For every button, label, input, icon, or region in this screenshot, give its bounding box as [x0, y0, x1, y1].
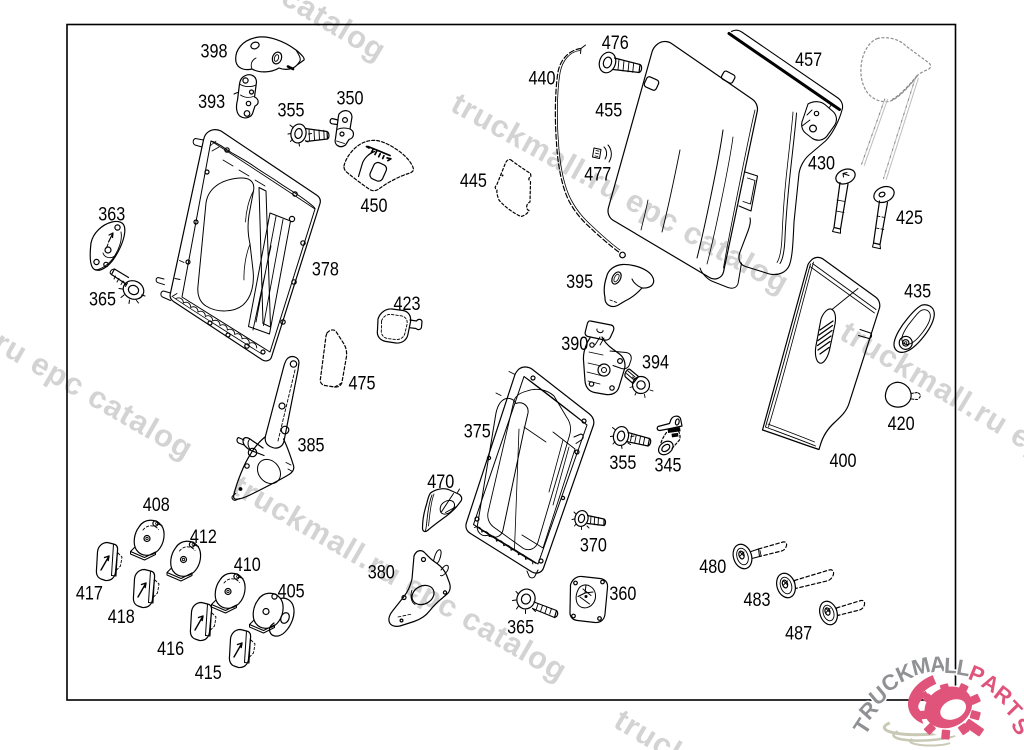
svg-text:355: 355 [278, 100, 305, 121]
svg-text:440: 440 [529, 68, 556, 89]
svg-text:487: 487 [785, 623, 812, 644]
svg-text:365: 365 [507, 617, 534, 638]
svg-text:417: 417 [76, 584, 103, 605]
svg-text:430: 430 [808, 154, 835, 175]
svg-text:378: 378 [312, 260, 339, 281]
svg-text:394: 394 [642, 352, 669, 373]
svg-text:420: 420 [888, 414, 915, 435]
svg-text:423: 423 [394, 294, 421, 315]
svg-text:375: 375 [464, 422, 491, 443]
svg-text:418: 418 [108, 607, 135, 628]
svg-text:398: 398 [201, 42, 228, 63]
svg-text:370: 370 [580, 536, 607, 557]
svg-text:457: 457 [795, 50, 822, 71]
svg-text:425: 425 [896, 208, 923, 229]
svg-text:405: 405 [278, 582, 305, 603]
svg-text:360: 360 [609, 584, 636, 605]
svg-text:345: 345 [655, 455, 682, 476]
svg-text:476: 476 [602, 33, 629, 54]
svg-text:470: 470 [427, 472, 454, 493]
svg-text:475: 475 [349, 373, 376, 394]
svg-text:400: 400 [830, 451, 857, 472]
svg-text:393: 393 [198, 92, 225, 113]
svg-text:390: 390 [561, 334, 588, 355]
svg-text:450: 450 [361, 196, 388, 217]
svg-text:416: 416 [157, 639, 184, 660]
svg-text:395: 395 [566, 272, 593, 293]
svg-text:380: 380 [368, 562, 395, 583]
svg-text:385: 385 [298, 436, 325, 457]
svg-text:445: 445 [460, 171, 487, 192]
svg-text:350: 350 [337, 89, 364, 110]
svg-text:477: 477 [584, 165, 611, 186]
svg-text:455: 455 [595, 100, 622, 121]
svg-text:410: 410 [234, 555, 261, 576]
svg-text:483: 483 [744, 590, 771, 611]
svg-text:355: 355 [609, 453, 636, 474]
svg-text:365: 365 [89, 289, 116, 310]
svg-text:363: 363 [98, 205, 125, 226]
svg-text:480: 480 [699, 557, 726, 578]
svg-text:435: 435 [904, 281, 931, 302]
svg-text:412: 412 [190, 527, 217, 548]
svg-text:415: 415 [195, 663, 222, 684]
svg-text:408: 408 [143, 495, 170, 516]
